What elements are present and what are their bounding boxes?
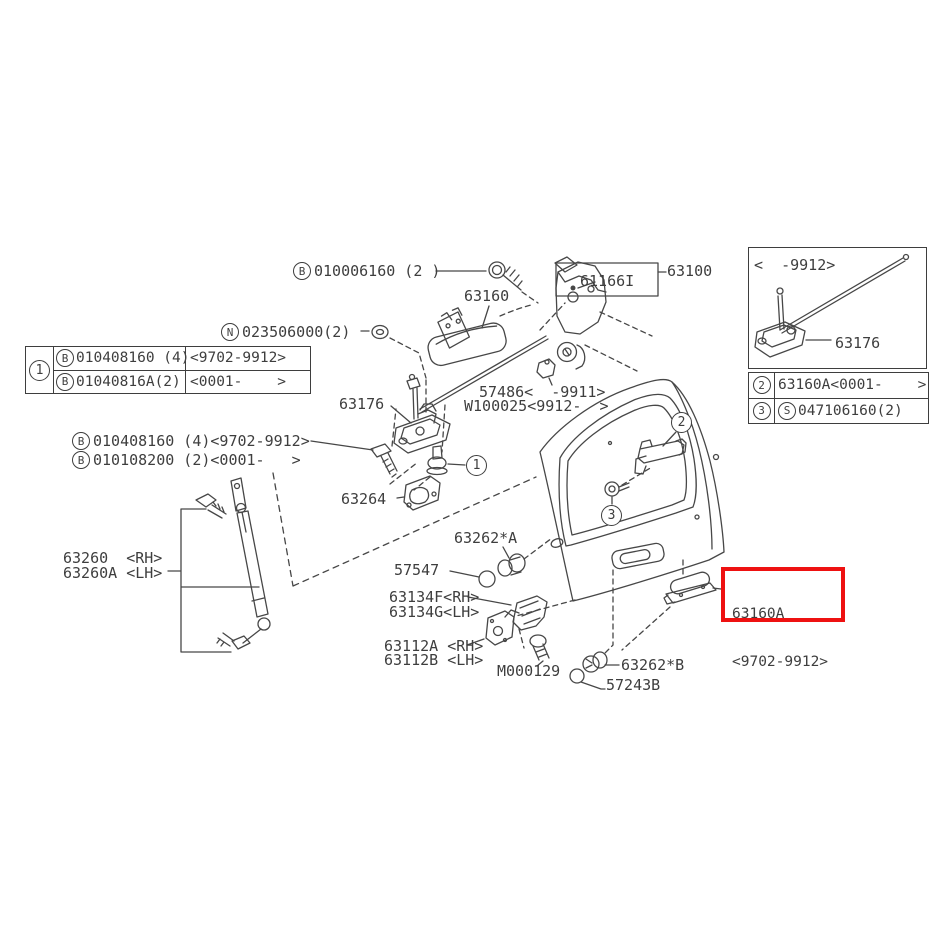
note-table-2: 2 63160A<0001- > 3 S047106160(2)	[748, 372, 929, 424]
grommet-57243b-drawing	[570, 669, 584, 683]
parts-diagram: B010006160 (2 ) N023506000(2) 63160 6116…	[0, 0, 931, 931]
circled-b-icon: B	[72, 432, 90, 450]
clamp-57486-drawing	[537, 359, 555, 378]
label-010006160: B010006160 (2 )	[293, 262, 440, 280]
inner-handle-drawing	[635, 439, 686, 474]
bolt-a-drawing	[371, 444, 397, 477]
strut-hinge-drawing	[231, 478, 246, 513]
key-cylinder-drawing	[558, 343, 585, 370]
highlight-part-number: 63160A	[732, 606, 841, 622]
lock-63176-drawing	[394, 375, 450, 454]
inset-box: < -9912> 63176	[748, 247, 927, 369]
circled-b-icon: B	[56, 349, 74, 367]
table-row: 2 63160A<0001- >	[749, 373, 928, 398]
label-63262a: 63262*A	[454, 530, 517, 546]
circled-n-icon: N	[221, 323, 239, 341]
circled-2-icon: 2	[753, 376, 771, 394]
note-table-1-marker: 1	[26, 347, 54, 393]
label-57243b: 57243B	[606, 677, 660, 693]
inset-range: < -9912>	[754, 256, 835, 274]
striker-63264-drawing	[404, 476, 440, 510]
callout-2: 2	[671, 412, 692, 433]
table-row: 3 S047106160(2)	[749, 398, 928, 424]
strut-63260-drawing	[217, 511, 270, 649]
note-table-1: 1 B010408160 (4) <9702-9912> B01040816A(…	[25, 346, 311, 394]
label-63134g: 63134G<LH>	[389, 604, 479, 620]
label-023506000: N023506000(2)	[221, 323, 350, 341]
label-61166i: 61166I	[580, 273, 634, 289]
bolt-010006160-drawing	[489, 262, 522, 290]
handle-63160-drawing	[420, 298, 508, 367]
label-63160: 63160	[464, 288, 509, 304]
label-57547: 57547	[394, 562, 439, 578]
table-row: B010408160 (4) <9702-9912>	[54, 347, 310, 370]
label-63112b: 63112B <LH>	[384, 652, 483, 668]
label-m000129: M000129	[497, 663, 560, 679]
circled-3-icon: 3	[753, 402, 771, 420]
bolt-m000129-drawing	[530, 635, 549, 660]
label-010408160: B010408160 (4)<9702-9912>	[72, 432, 310, 450]
lamp-63160a-drawing	[664, 570, 716, 604]
callout-1: 1	[466, 455, 487, 476]
license-garnish-drawing	[611, 542, 665, 570]
highlight-box-63160a: 63160A <9702-9912>	[721, 567, 845, 622]
socket-63262b-drawing	[583, 652, 607, 672]
bolt-b-drawing	[427, 446, 447, 475]
label-63262b: 63262*B	[621, 657, 684, 673]
screw-callout3-drawing	[605, 482, 629, 496]
label-63176: 63176	[339, 396, 384, 412]
grommet-023506000-drawing	[372, 326, 388, 339]
callout-3: 3	[601, 505, 622, 526]
table-row: B01040816A(2) <0001- >	[54, 370, 310, 394]
highlight-date-range: <9702-9912>	[732, 654, 841, 670]
label-63100: 63100	[667, 263, 712, 279]
label-63264: 63264	[341, 491, 386, 507]
label-w100025: W100025<9912- >	[464, 398, 609, 414]
inset-part-label: 63176	[835, 334, 880, 352]
label-010108200: B010108200 (2)<0001- >	[72, 451, 301, 469]
socket-63262a-drawing	[498, 554, 525, 576]
circled-1-icon: 1	[29, 360, 50, 381]
circled-b-icon: B	[72, 451, 90, 469]
circled-b-icon: B	[56, 373, 74, 391]
label-63260-lh: 63260A <LH>	[63, 565, 162, 581]
circled-b-icon: B	[293, 262, 311, 280]
circled-s-icon: S	[778, 402, 796, 420]
grommet-57547-drawing	[479, 571, 495, 587]
strut-top-bolt-drawing	[196, 494, 226, 518]
